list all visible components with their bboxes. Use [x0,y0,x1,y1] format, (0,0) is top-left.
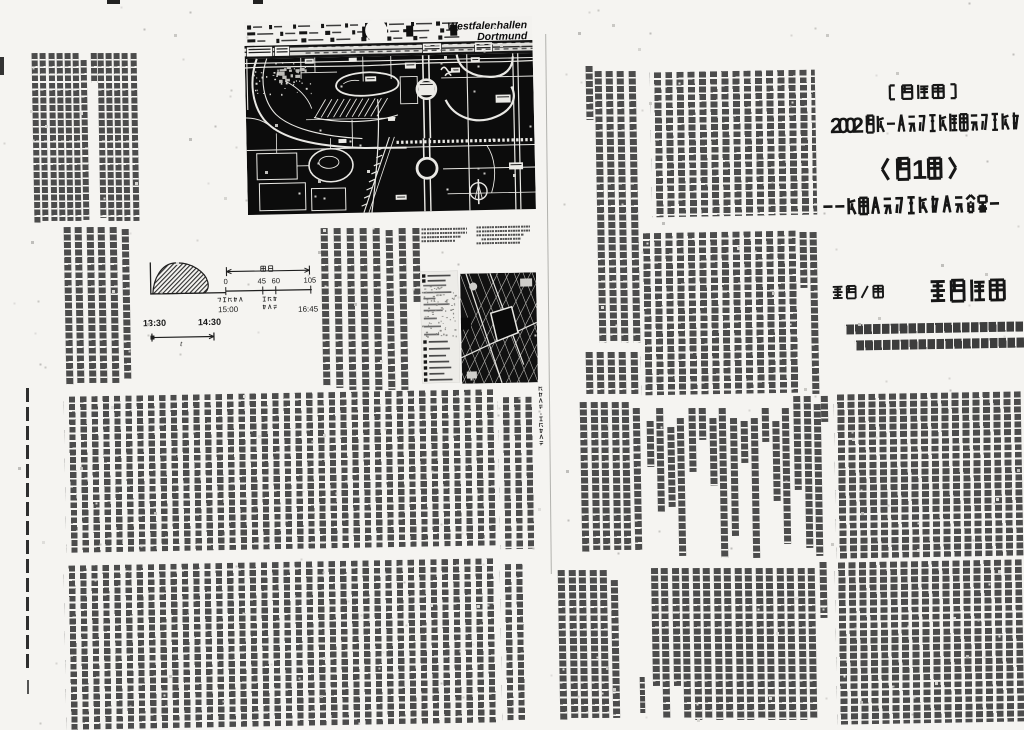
svg-text:15:00: 15:00 [218,305,239,314]
svg-text:105: 105 [304,276,317,285]
svg-text:1: 1 [912,155,928,185]
svg-text:t: t [180,339,183,348]
svg-text:45: 45 [258,276,266,285]
svg-text:60: 60 [272,276,280,285]
svg-text:0: 0 [224,277,228,286]
svg-text:2002: 2002 [830,113,864,139]
svg-text:16:45: 16:45 [298,305,319,314]
